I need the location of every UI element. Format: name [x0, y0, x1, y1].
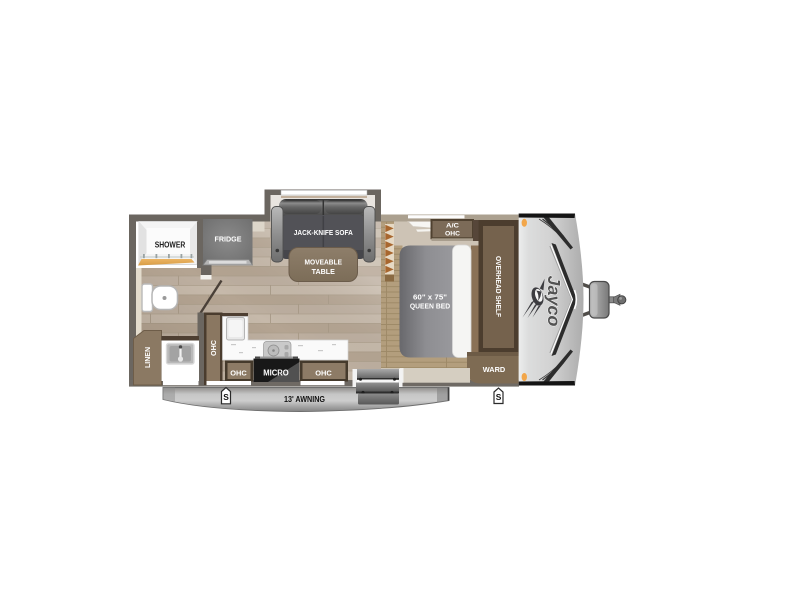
svg-text:FRIDGE: FRIDGE	[215, 235, 242, 244]
svg-text:LINEN: LINEN	[143, 347, 152, 368]
svg-text:OHC: OHC	[445, 230, 460, 237]
svg-text:QUEEN BED: QUEEN BED	[410, 301, 451, 310]
svg-text:OHC: OHC	[230, 368, 247, 377]
svg-text:SHOWER: SHOWER	[155, 241, 186, 250]
svg-text:S: S	[223, 392, 229, 402]
svg-text:13' AWNING: 13' AWNING	[284, 394, 325, 404]
svg-text:MICRO: MICRO	[263, 368, 289, 377]
svg-text:OVERHEAD SHELF: OVERHEAD SHELF	[494, 256, 503, 318]
svg-text:MOVEABLE: MOVEABLE	[305, 258, 343, 267]
svg-text:OHC: OHC	[315, 368, 332, 377]
svg-text:TABLE: TABLE	[312, 267, 335, 276]
svg-text:WARD: WARD	[483, 365, 506, 374]
svg-text:Jayco: Jayco	[544, 276, 564, 327]
svg-text:OHC: OHC	[209, 340, 218, 356]
svg-text:S: S	[496, 392, 502, 402]
svg-text:A/C: A/C	[446, 223, 459, 230]
svg-text:JACK-KNIFE SOFA: JACK-KNIFE SOFA	[294, 228, 353, 237]
